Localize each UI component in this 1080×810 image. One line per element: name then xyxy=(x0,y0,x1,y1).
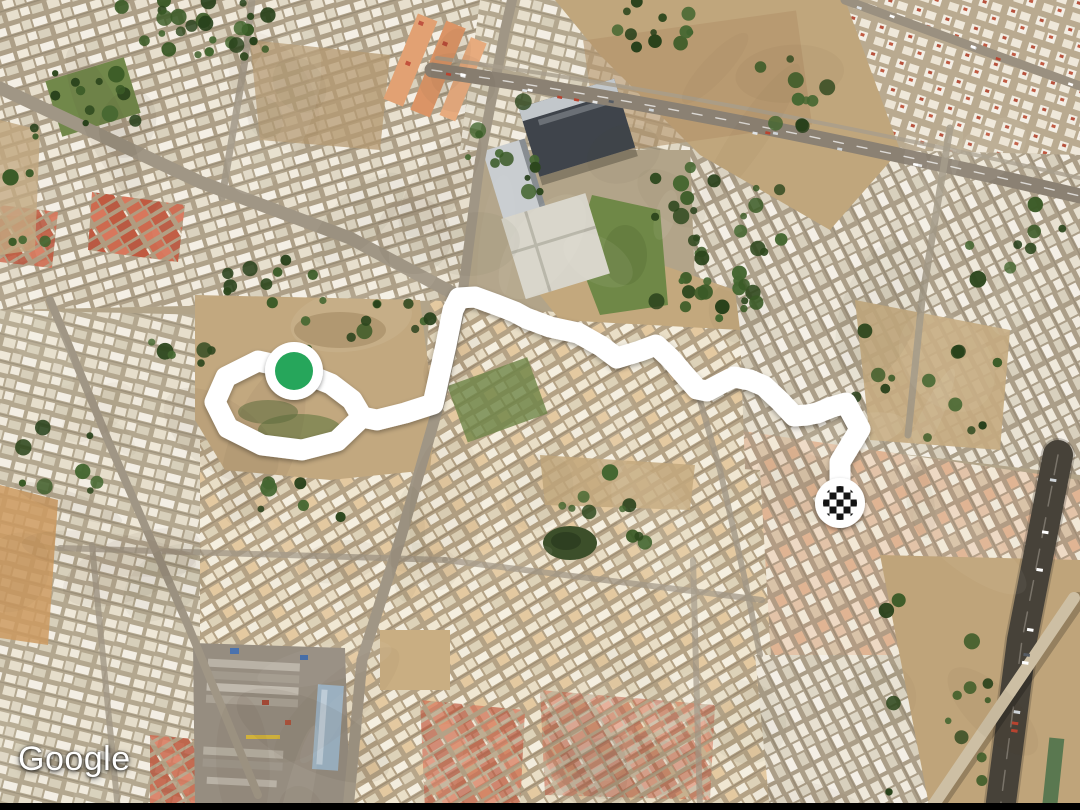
map-viewport[interactable]: Google xyxy=(0,0,1080,810)
letterbox-bar xyxy=(0,803,1080,810)
route-finish-marker[interactable] xyxy=(815,478,865,528)
route-overlay xyxy=(0,0,1080,810)
route-path xyxy=(215,297,860,492)
google-logo[interactable]: Google xyxy=(18,742,131,776)
route-start-marker[interactable] xyxy=(265,342,323,400)
